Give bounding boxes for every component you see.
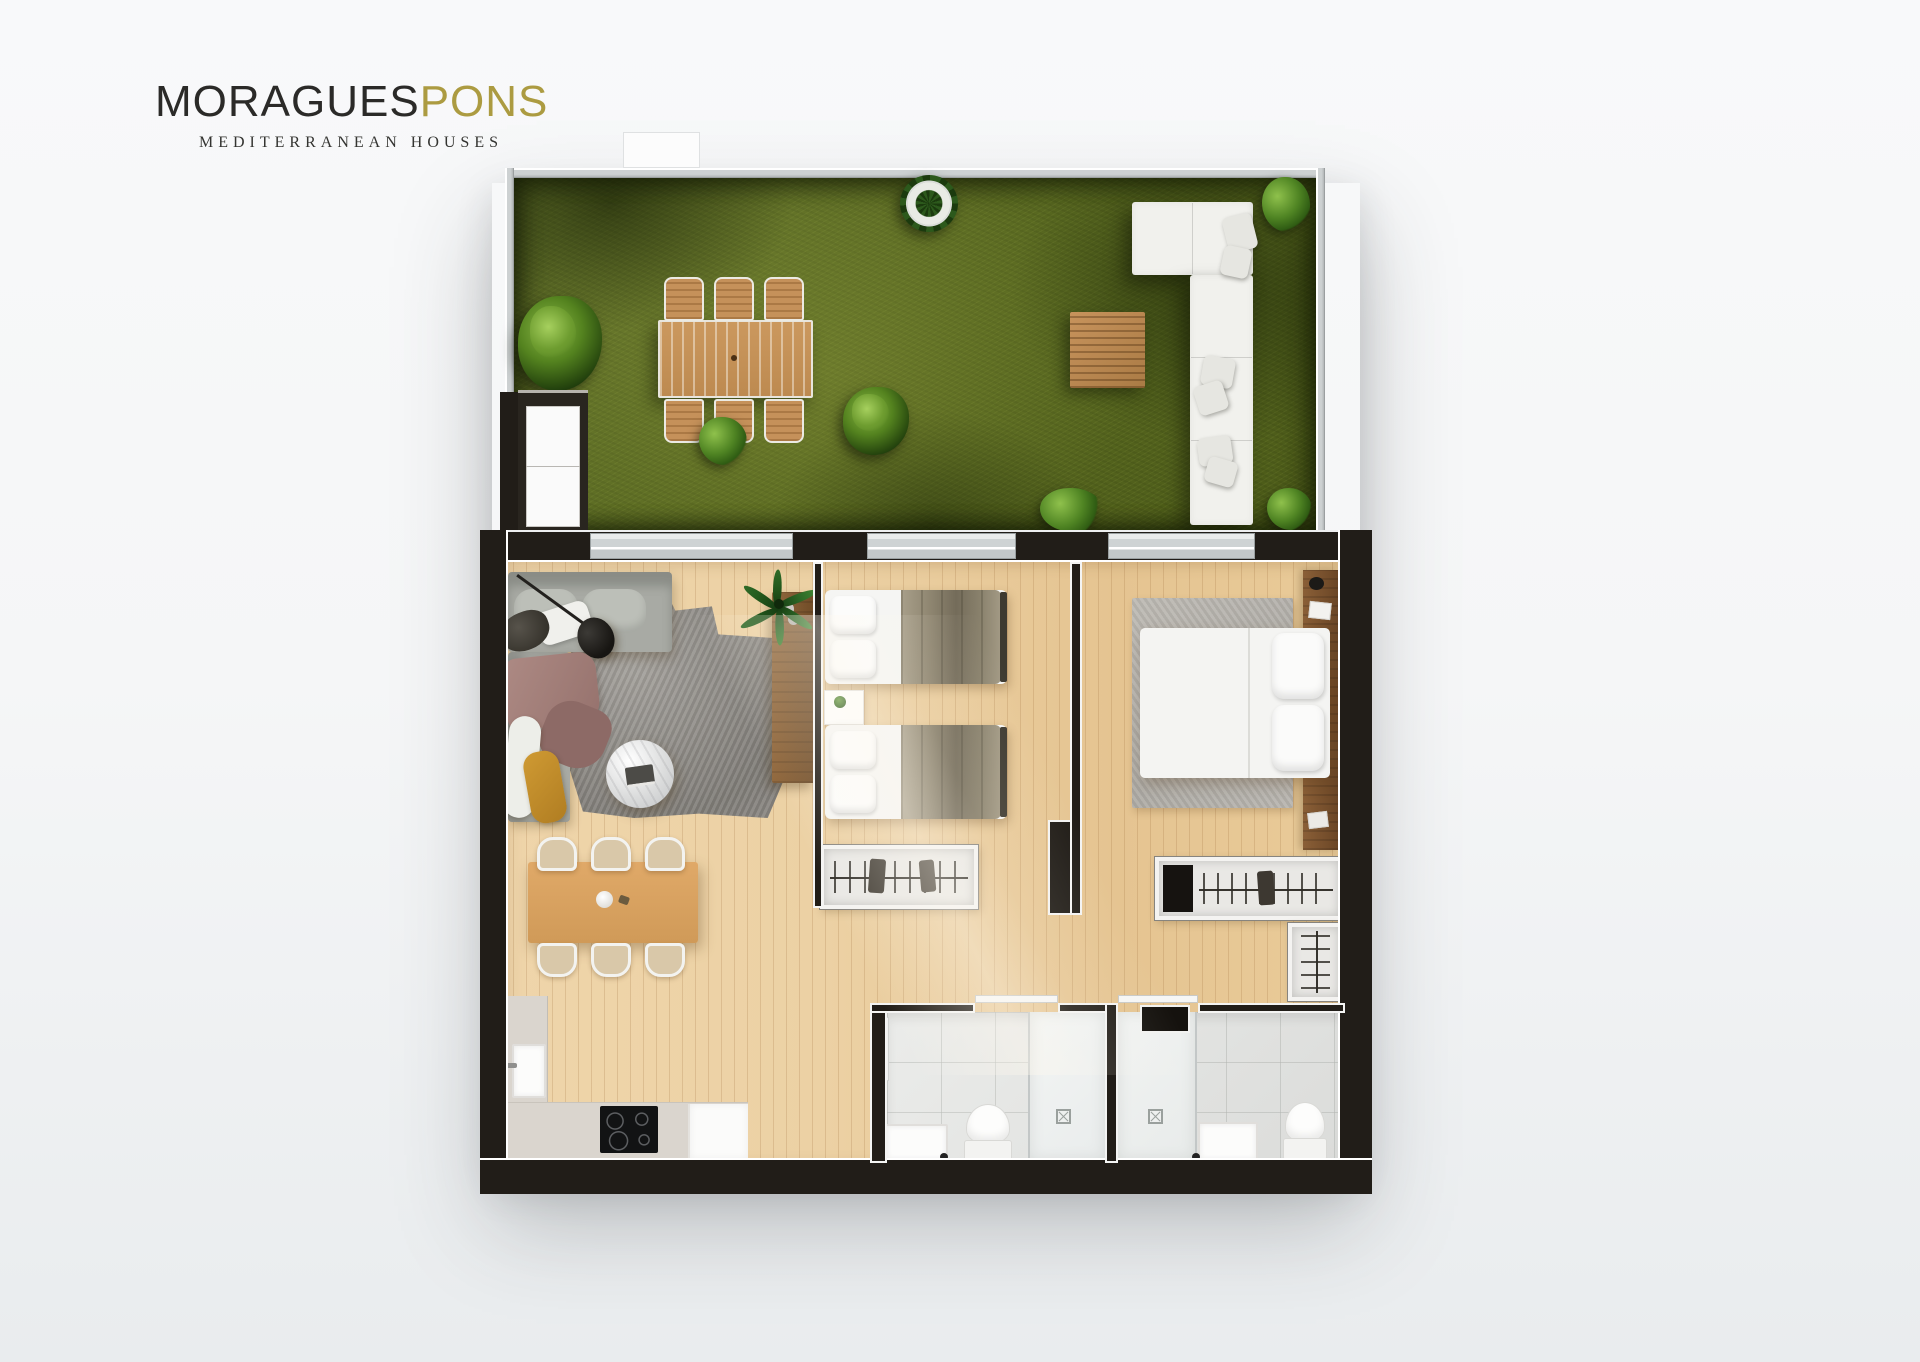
master-wardrobe [1155, 857, 1343, 920]
bed-throw-edge [1000, 727, 1007, 817]
wardrobe-clothes [868, 859, 886, 894]
dining-chair [591, 837, 631, 871]
wall-between-bathrooms [1105, 1003, 1118, 1163]
brand-wordmark: MORAGUESPONS [155, 80, 547, 124]
brand-name-secondary: PONS [420, 77, 549, 126]
dining-chair [645, 943, 685, 977]
palm-plant [736, 563, 820, 647]
outdoor-chair [714, 277, 754, 321]
toilet-bowl [966, 1104, 1010, 1144]
wardrobe-hangers [834, 861, 960, 892]
bed-blanket [901, 590, 1001, 684]
bed-pillow [830, 640, 876, 678]
terrace-plant-top-right [1262, 177, 1310, 232]
terrace-plant-bottom-right [1267, 488, 1312, 530]
terrace-wall-right [1316, 168, 1325, 530]
bathroom1-wall-left [870, 1003, 887, 1163]
bed-pillow [1272, 633, 1324, 699]
palm-center [774, 599, 784, 609]
outdoor-sofa-seam [1192, 203, 1193, 274]
bed-pillow [830, 596, 876, 634]
bed-pillow [1272, 705, 1324, 771]
bathroom1-door-leaf [975, 995, 1058, 1003]
terrace-plant-bottom-center [1040, 488, 1103, 532]
outdoor-chair [664, 399, 704, 443]
outdoor-chair [764, 277, 804, 321]
sliding-door-master-bedroom [1108, 533, 1255, 559]
bed-pillow [830, 775, 876, 813]
shower-drain [1056, 1109, 1071, 1124]
terrace-wall-top [505, 168, 1325, 178]
terrace-potted-plant [900, 175, 958, 232]
bathroom1-vanity [885, 1124, 948, 1161]
headboard-books [1308, 601, 1332, 620]
outdoor-chair [764, 399, 804, 443]
brand-tagline: MEDITERRANEAN HOUSES [155, 134, 547, 152]
sliding-door-living [590, 533, 793, 559]
bed-pillow [830, 731, 876, 769]
dining-table [528, 862, 698, 943]
terrace-wall-ledge [623, 132, 700, 168]
bed-blanket [901, 725, 1001, 819]
dining-chair [537, 837, 577, 871]
twin-bed [825, 725, 1007, 819]
dining-chair [591, 943, 631, 977]
twin-bed [825, 590, 1007, 684]
headboard-decor-bowl [1309, 577, 1324, 590]
outdoor-chair [664, 277, 704, 321]
wall-bottom-exterior [480, 1158, 1372, 1194]
duvet-fold [1140, 628, 1250, 778]
dining-table-bowl [596, 891, 613, 908]
brand-name-primary: MORAGUES [155, 77, 420, 126]
wall-right-exterior [1338, 530, 1372, 1193]
wall-living-twin-bedroom [813, 562, 823, 908]
bathroom-wall-top [1198, 1003, 1345, 1013]
bathroom2-shower [1118, 1012, 1197, 1160]
bathroom-wall-top [870, 1003, 975, 1013]
kitchen-sink [512, 1044, 546, 1098]
double-bed [1140, 628, 1330, 778]
wardrobe-clothes [919, 860, 937, 893]
storage-cabinet-divider [526, 466, 580, 467]
bathroom2-vanity [1198, 1122, 1258, 1161]
coffee-table-book [625, 764, 656, 788]
bathroom2-door-leaf [1118, 995, 1198, 1003]
nightstand-plant [834, 696, 846, 708]
brand-logo: MORAGUESPONS MEDITERRANEAN HOUSES [155, 80, 547, 152]
terrace-plant-small [699, 417, 747, 465]
outdoor-coffee-table [1070, 312, 1145, 388]
dining-chair [537, 943, 577, 977]
sliding-door-twin-bedroom [867, 533, 1016, 559]
floor-plan [480, 165, 1372, 1200]
toilet-bowl [1285, 1102, 1325, 1142]
cooktop [600, 1106, 658, 1153]
shoe-closet [1288, 923, 1343, 1001]
wall-pier-bedroom-door [1048, 820, 1072, 915]
bathroom1-shower [1028, 1012, 1105, 1160]
twin-bedroom-wardrobe [820, 845, 978, 909]
bed-throw-edge [1000, 592, 1007, 682]
closet-hangers [1301, 935, 1329, 989]
kitchen-worktop-board [688, 1104, 748, 1159]
terrace-wall-left [505, 168, 514, 400]
dining-chair [645, 837, 685, 871]
nightstand [824, 690, 864, 725]
wall-left-exterior [480, 530, 508, 1193]
wardrobe-dark-section [1163, 865, 1193, 912]
headboard-books [1307, 811, 1329, 829]
toilet-tank [1283, 1138, 1327, 1160]
shower-drain [1148, 1109, 1163, 1124]
outdoor-table-umbrella-hole [731, 355, 737, 361]
bathroom2-niche [1140, 1005, 1190, 1033]
wardrobe-clothes [1257, 870, 1275, 905]
